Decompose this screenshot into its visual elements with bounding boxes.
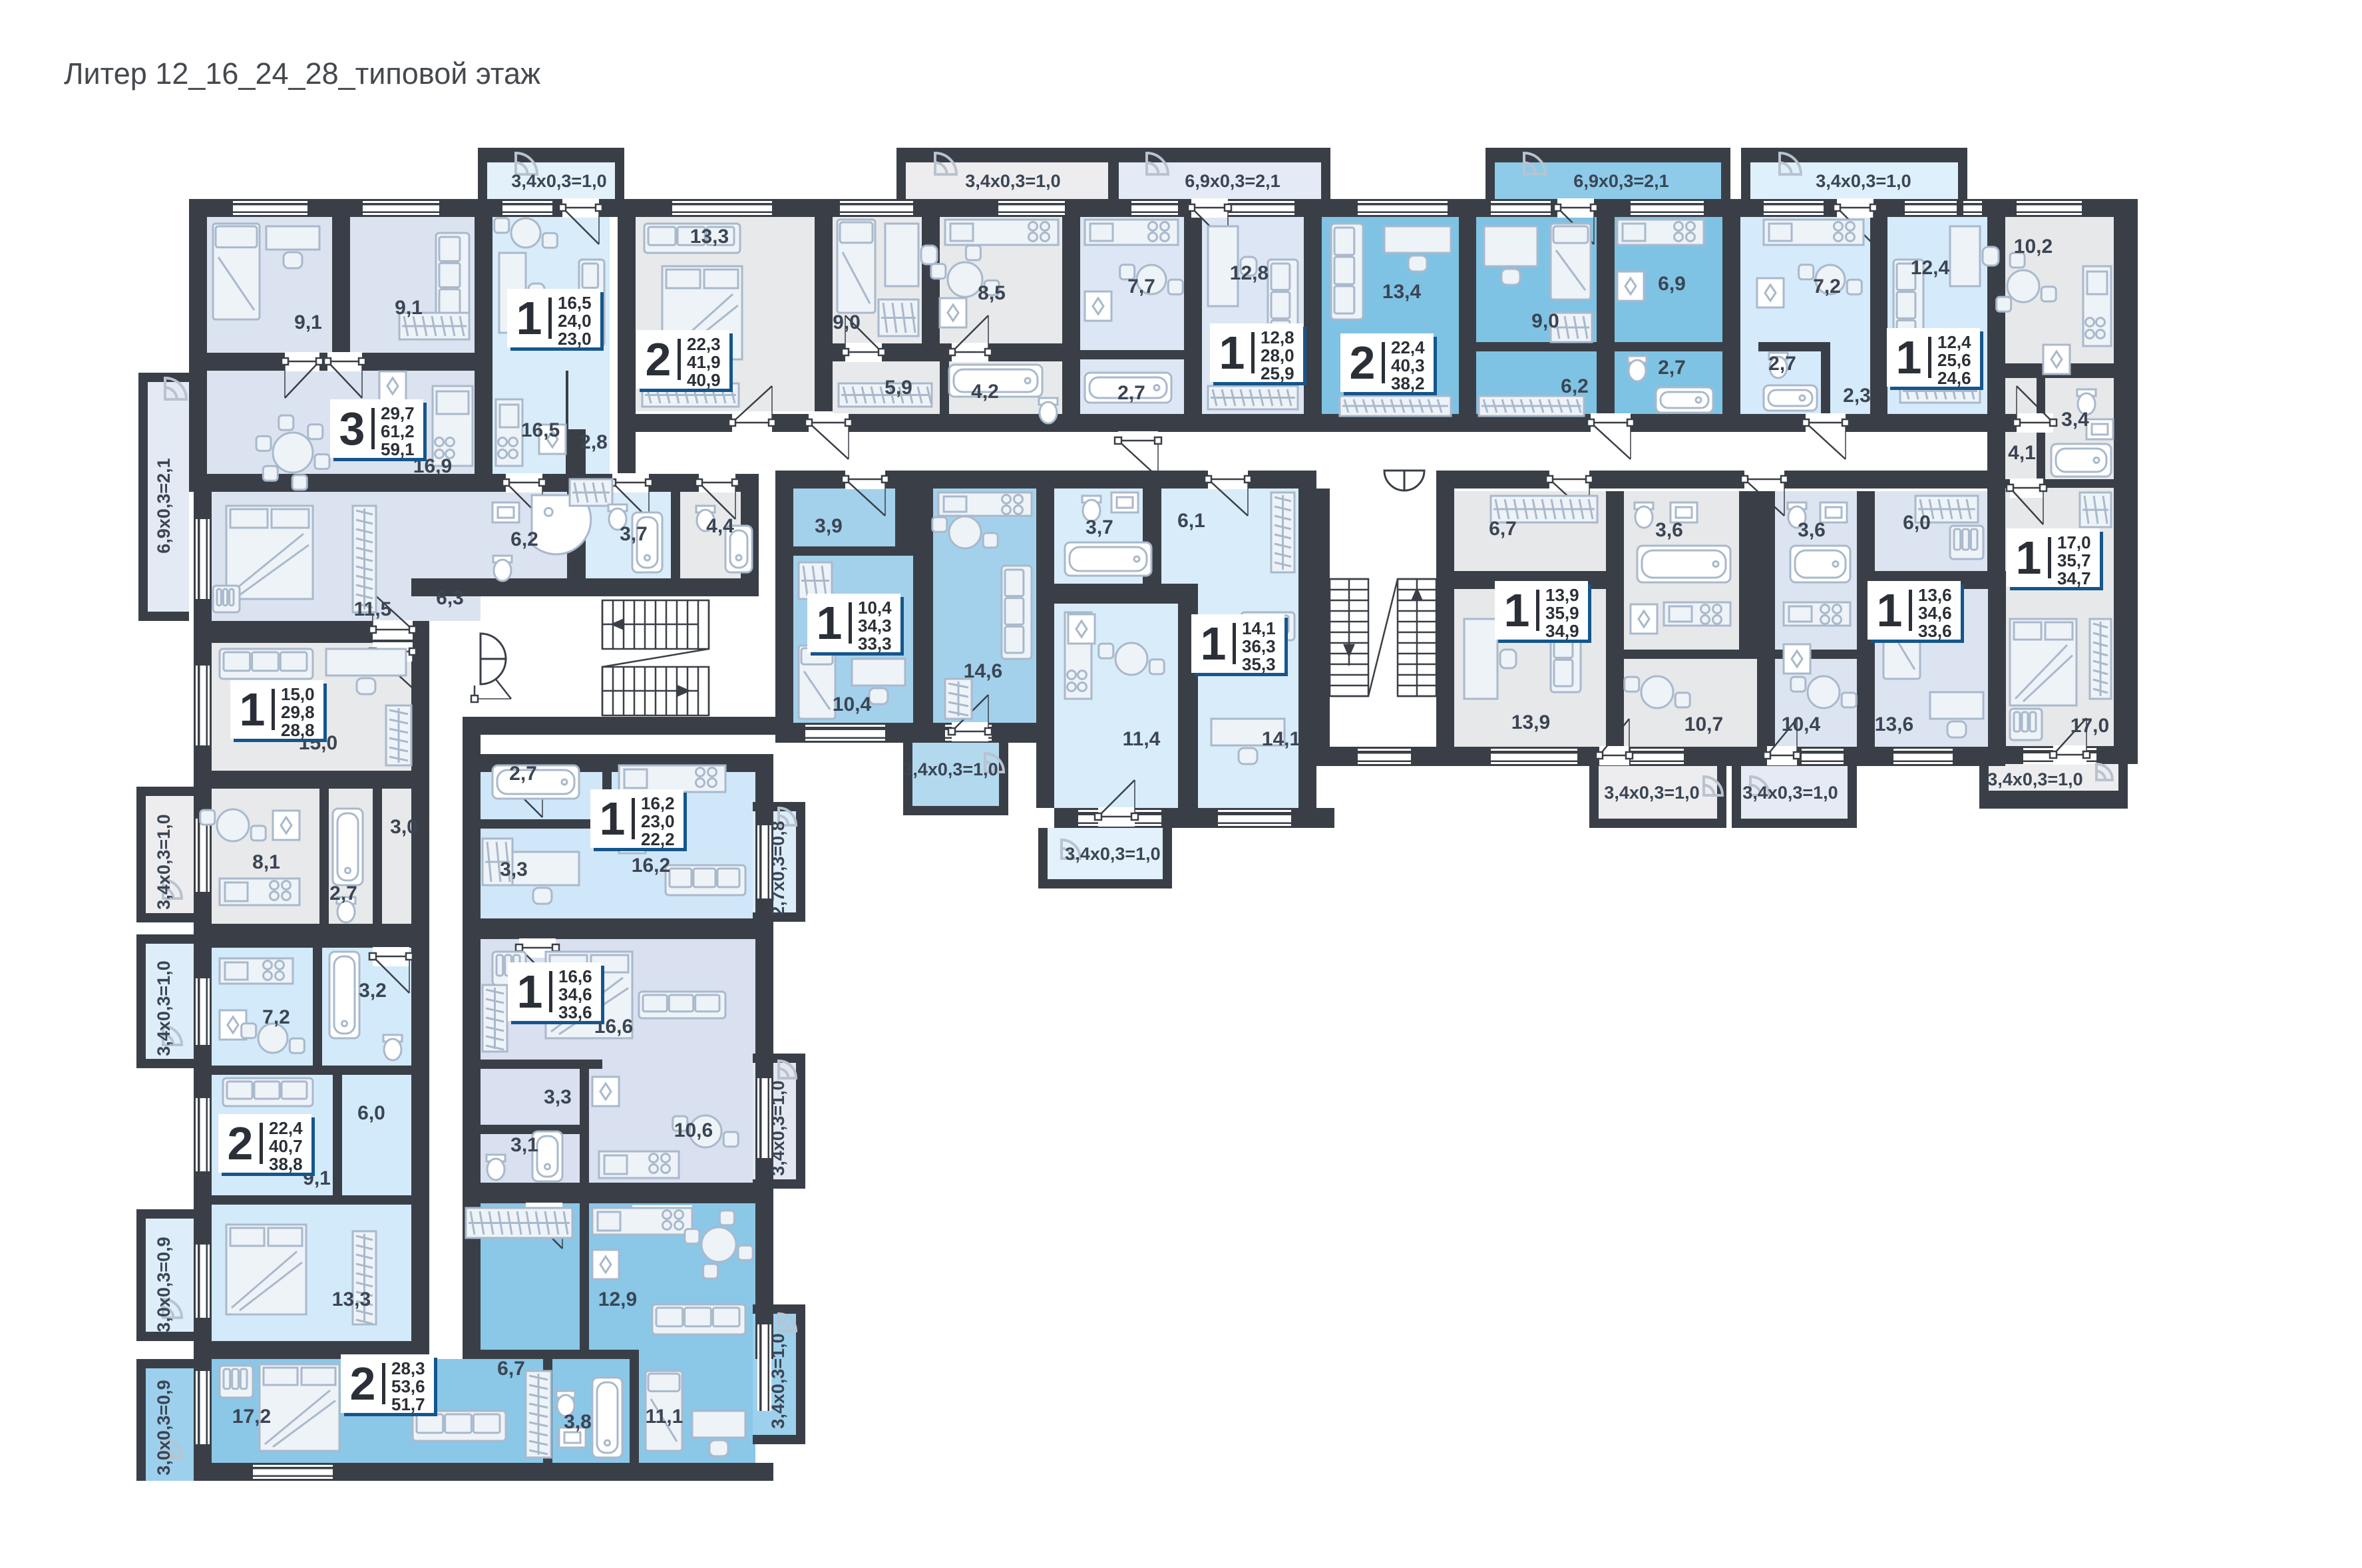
- svg-text:1: 1: [517, 966, 543, 1018]
- svg-text:23,0: 23,0: [558, 329, 592, 349]
- svg-text:10,4: 10,4: [1782, 713, 1821, 735]
- svg-text:11,1: 11,1: [646, 1406, 684, 1428]
- svg-text:25,6: 25,6: [1937, 350, 1971, 370]
- svg-text:6,2: 6,2: [510, 528, 538, 550]
- svg-text:13,4: 13,4: [1382, 281, 1422, 303]
- svg-text:2,7: 2,7: [1768, 353, 1796, 375]
- svg-text:3,4х0,3=1,0: 3,4х0,3=1,0: [768, 1080, 788, 1175]
- svg-text:2: 2: [228, 1117, 254, 1169]
- svg-text:6,9: 6,9: [1658, 273, 1686, 295]
- svg-text:28,8: 28,8: [281, 720, 315, 740]
- svg-text:3,4х0,3=1,0: 3,4х0,3=1,0: [1742, 783, 1838, 803]
- svg-text:23,0: 23,0: [641, 811, 675, 831]
- svg-text:7,2: 7,2: [262, 1006, 290, 1028]
- svg-text:12,4: 12,4: [1937, 332, 1971, 352]
- svg-text:9,0: 9,0: [833, 311, 861, 333]
- svg-text:10,4: 10,4: [833, 693, 872, 715]
- svg-text:1: 1: [1201, 618, 1227, 670]
- svg-text:12,4: 12,4: [1911, 257, 1950, 279]
- svg-text:16,6: 16,6: [558, 966, 592, 986]
- svg-text:3,4х0,3=1,0: 3,4х0,3=1,0: [965, 171, 1060, 191]
- svg-text:22,4: 22,4: [1391, 337, 1425, 357]
- svg-text:22,4: 22,4: [269, 1118, 303, 1138]
- svg-text:9,0: 9,0: [1531, 310, 1559, 332]
- svg-text:1: 1: [240, 684, 266, 735]
- svg-text:34,7: 34,7: [2057, 568, 2091, 588]
- svg-text:13,9: 13,9: [1511, 711, 1550, 733]
- svg-text:61,2: 61,2: [381, 421, 415, 441]
- svg-text:2: 2: [1350, 337, 1376, 389]
- svg-text:13,3: 13,3: [690, 226, 729, 248]
- svg-text:4,4: 4,4: [706, 515, 734, 537]
- svg-text:1: 1: [1219, 327, 1245, 379]
- svg-text:38,2: 38,2: [1391, 373, 1425, 393]
- svg-text:35,9: 35,9: [1545, 603, 1579, 623]
- svg-text:4,2: 4,2: [971, 381, 999, 403]
- svg-text:3,7: 3,7: [1085, 516, 1113, 538]
- svg-text:24,6: 24,6: [1937, 368, 1971, 388]
- svg-text:2,7: 2,7: [329, 882, 357, 904]
- svg-text:8,5: 8,5: [978, 282, 1006, 304]
- svg-text:6,7: 6,7: [497, 1358, 525, 1380]
- svg-text:3,9: 3,9: [815, 515, 843, 537]
- svg-text:16,5: 16,5: [521, 419, 560, 441]
- svg-text:8,1: 8,1: [252, 851, 280, 873]
- svg-text:1: 1: [817, 597, 843, 649]
- svg-text:3,4х0,3=1,0: 3,4х0,3=1,0: [154, 814, 174, 909]
- svg-text:12,8: 12,8: [1261, 327, 1294, 347]
- svg-text:40,7: 40,7: [269, 1136, 303, 1156]
- svg-text:3,7: 3,7: [620, 523, 648, 545]
- svg-text:34,9: 34,9: [1545, 621, 1579, 641]
- svg-text:2,7: 2,7: [1658, 357, 1686, 379]
- svg-text:3,4х0,3=1,0: 3,4х0,3=1,0: [1987, 769, 2082, 789]
- svg-text:13,6: 13,6: [1875, 713, 1913, 735]
- svg-text:35,7: 35,7: [2057, 550, 2091, 570]
- svg-text:3,4х0,3=1,0: 3,4х0,3=1,0: [902, 759, 998, 779]
- svg-text:13,9: 13,9: [1545, 585, 1579, 605]
- svg-text:6,0: 6,0: [1903, 512, 1931, 534]
- svg-text:51,7: 51,7: [391, 1394, 425, 1414]
- svg-text:3,3: 3,3: [500, 859, 528, 881]
- svg-text:16,2: 16,2: [632, 855, 670, 877]
- svg-text:10,7: 10,7: [1684, 713, 1723, 735]
- svg-text:1: 1: [516, 292, 542, 344]
- svg-text:3,4х0,3=1,0: 3,4х0,3=1,0: [768, 1333, 788, 1428]
- svg-text:41,9: 41,9: [687, 352, 721, 372]
- svg-text:2,7: 2,7: [509, 763, 537, 785]
- svg-text:9,1: 9,1: [395, 297, 423, 319]
- svg-text:3,0х0,3=0,9: 3,0х0,3=0,9: [154, 1237, 174, 1332]
- svg-text:Литер 12_16_24_28_типовой этаж: Литер 12_16_24_28_типовой этаж: [64, 57, 540, 91]
- svg-text:33,6: 33,6: [558, 1002, 592, 1022]
- svg-text:1: 1: [600, 793, 626, 845]
- svg-text:10,6: 10,6: [674, 1119, 713, 1141]
- svg-text:7,7: 7,7: [1127, 276, 1155, 297]
- svg-text:2,7х0,3=0,8: 2,7х0,3=0,8: [768, 821, 788, 916]
- svg-text:6,1: 6,1: [1177, 510, 1205, 532]
- svg-text:3,8: 3,8: [564, 1411, 592, 1433]
- svg-text:2: 2: [350, 1358, 376, 1410]
- svg-text:11,5: 11,5: [354, 598, 392, 620]
- svg-text:34,6: 34,6: [558, 984, 592, 1004]
- svg-text:11,4: 11,4: [1123, 728, 1161, 750]
- svg-text:38,8: 38,8: [269, 1154, 303, 1174]
- svg-text:35,3: 35,3: [1242, 654, 1276, 674]
- svg-text:13,3: 13,3: [332, 1288, 371, 1310]
- svg-text:6,7: 6,7: [1489, 518, 1517, 540]
- svg-text:7,2: 7,2: [1813, 276, 1841, 297]
- svg-text:16,5: 16,5: [558, 293, 592, 313]
- svg-text:33,3: 33,3: [858, 634, 892, 654]
- svg-text:10,4: 10,4: [858, 598, 892, 618]
- svg-text:1: 1: [1504, 584, 1530, 636]
- svg-text:3,4х0,3=1,0: 3,4х0,3=1,0: [1065, 844, 1160, 864]
- svg-text:4,1: 4,1: [2008, 442, 2036, 464]
- svg-text:6,9х0,3=2,1: 6,9х0,3=2,1: [1185, 171, 1280, 191]
- svg-text:6,2: 6,2: [1561, 375, 1589, 397]
- svg-text:34,3: 34,3: [858, 616, 892, 636]
- svg-text:14,6: 14,6: [964, 660, 1002, 682]
- svg-text:14,1: 14,1: [1262, 728, 1300, 750]
- svg-text:5,9: 5,9: [885, 377, 912, 399]
- svg-text:22,2: 22,2: [641, 829, 675, 849]
- svg-text:33,6: 33,6: [1918, 621, 1952, 641]
- svg-text:13,6: 13,6: [1918, 585, 1952, 605]
- svg-text:2,7: 2,7: [1117, 382, 1145, 404]
- svg-text:36,3: 36,3: [1242, 636, 1276, 656]
- svg-text:3,6: 3,6: [1798, 519, 1826, 541]
- svg-text:12,9: 12,9: [598, 1288, 637, 1310]
- svg-text:28,3: 28,3: [391, 1358, 425, 1378]
- svg-text:16,2: 16,2: [641, 793, 675, 813]
- svg-text:59,1: 59,1: [381, 439, 415, 459]
- svg-text:17,0: 17,0: [2057, 532, 2091, 552]
- svg-text:6,0: 6,0: [357, 1102, 385, 1124]
- svg-text:29,8: 29,8: [281, 702, 315, 722]
- svg-text:9,1: 9,1: [294, 311, 322, 333]
- svg-text:28,0: 28,0: [1261, 345, 1294, 365]
- svg-text:3,3: 3,3: [544, 1086, 572, 1108]
- svg-text:6,9х0,3=2,1: 6,9х0,3=2,1: [1573, 171, 1669, 191]
- svg-text:17,0: 17,0: [2070, 715, 2109, 737]
- svg-text:3,0х0,3=0,9: 3,0х0,3=0,9: [154, 1380, 174, 1475]
- svg-text:3,1: 3,1: [510, 1134, 538, 1156]
- svg-text:3,6: 3,6: [1655, 519, 1683, 541]
- svg-text:34,6: 34,6: [1918, 603, 1952, 623]
- svg-text:12,8: 12,8: [1230, 262, 1269, 284]
- svg-text:2,3: 2,3: [1843, 385, 1871, 407]
- svg-text:17,2: 17,2: [232, 1406, 271, 1428]
- svg-text:3,4х0,3=1,0: 3,4х0,3=1,0: [154, 960, 174, 1056]
- svg-text:40,9: 40,9: [687, 370, 721, 390]
- svg-text:10,2: 10,2: [2014, 236, 2053, 258]
- svg-text:24,0: 24,0: [558, 311, 592, 331]
- svg-text:29,7: 29,7: [381, 403, 415, 423]
- svg-text:14,1: 14,1: [1242, 618, 1276, 638]
- svg-text:3,0: 3,0: [390, 816, 418, 838]
- svg-text:15,0: 15,0: [281, 684, 315, 704]
- svg-text:25,9: 25,9: [1261, 363, 1294, 383]
- svg-text:6,9х0,3=2,1: 6,9х0,3=2,1: [154, 458, 174, 553]
- svg-text:3,4: 3,4: [2061, 409, 2089, 431]
- svg-text:6,3: 6,3: [436, 587, 464, 609]
- svg-text:3: 3: [339, 403, 365, 455]
- svg-text:2: 2: [646, 333, 672, 385]
- svg-text:22,3: 22,3: [687, 334, 721, 354]
- svg-text:3,4х0,3=1,0: 3,4х0,3=1,0: [1816, 171, 1911, 191]
- svg-text:3,4х0,3=1,0: 3,4х0,3=1,0: [1604, 783, 1699, 803]
- svg-text:1: 1: [1877, 584, 1903, 636]
- svg-text:1: 1: [2016, 532, 2042, 584]
- svg-text:2,8: 2,8: [580, 431, 608, 453]
- svg-text:3,4х0,3=1,0: 3,4х0,3=1,0: [511, 171, 606, 191]
- svg-text:53,6: 53,6: [391, 1376, 425, 1396]
- svg-text:1: 1: [1896, 331, 1922, 383]
- svg-text:40,3: 40,3: [1391, 355, 1425, 375]
- svg-text:3,2: 3,2: [359, 980, 387, 1002]
